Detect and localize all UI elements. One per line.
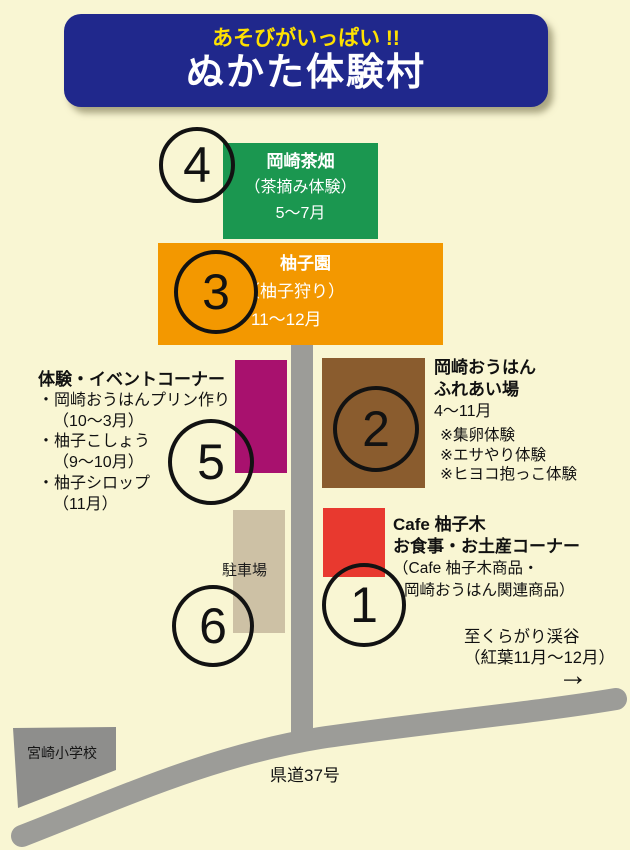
tea-field-subtitle: （茶摘み体験） [223,175,378,201]
site-number-6: 6 [172,585,254,667]
fureai-name-line1: 岡崎おうはん [434,357,536,379]
school-label: 宮崎小学校 [27,743,97,763]
cafe-label: Cafe 柚子木 お食事・お土産コーナー （Cafe 柚子木商品・ 岡崎おうはん… [393,514,580,602]
site-number-4: 4 [159,127,235,203]
road-label: 県道37号 [270,761,340,786]
site-number-1: 1 [322,563,406,647]
fureai-activity: ※ヒヨコ抱っこ体験 [440,465,577,485]
destination-note: 至くらがり渓谷 （紅葉11月〜12月） [464,627,615,669]
fureai-activity: ※エサやり体験 [440,446,577,466]
cafe-name: Cafe 柚子木 [393,514,580,536]
cafe-subtitle: お食事・お土産コーナー [393,536,580,558]
fureai-name-line2: ふれあい場 [434,379,536,401]
site-number-5: 5 [168,419,254,505]
fureai-activities: ※集卵体験 ※エサやり体験 ※ヒヨコ抱っこ体験 [440,426,577,485]
fureai-period: 4〜11月 [434,401,536,423]
destination-line2: （紅葉11月〜12月） [464,648,615,669]
tea-field-label: 岡崎茶畑 （茶摘み体験） 5〜7月 [223,149,378,227]
site-number-3: 3 [174,250,258,334]
event-corner-title: 体験・イベントコーナー [38,370,230,391]
fureai-activity: ※集卵体験 [440,426,577,446]
site-number-2: 2 [333,386,419,472]
cafe-note-line1: （Cafe 柚子木商品・ [393,558,580,580]
yuzu-garden-name: 柚子園 [280,250,345,278]
cafe-note-line2: 岡崎おうはん関連商品） [393,580,580,602]
yuzu-garden-period: 11〜12月 [251,306,345,334]
tagline: あそびがいっぱい !! [212,27,400,51]
destination-line1: 至くらがり渓谷 [464,627,615,648]
tea-field-name: 岡崎茶畑 [223,149,378,175]
parking-label: 駐車場 [222,559,267,580]
fureai-label: 岡崎おうはん ふれあい場 4〜11月 [434,357,536,423]
right-arrow-icon: → [558,661,588,691]
yuzu-garden-label: 柚子園 （柚子狩り） 11〜12月 [243,250,345,334]
title-banner: あそびがいっぱい !! ぬかた体験村 [64,14,548,107]
event-item-label: ・岡崎おうはんプリン作り [38,391,230,412]
tea-field-period: 5〜7月 [223,201,378,227]
map-canvas: あそびがいっぱい !! ぬかた体験村 岡崎茶畑 （茶摘み体験） 5〜7月 柚子園… [0,0,630,850]
yuzu-garden-subtitle: （柚子狩り） [243,278,345,306]
page-title: ぬかた体験村 [186,51,426,95]
